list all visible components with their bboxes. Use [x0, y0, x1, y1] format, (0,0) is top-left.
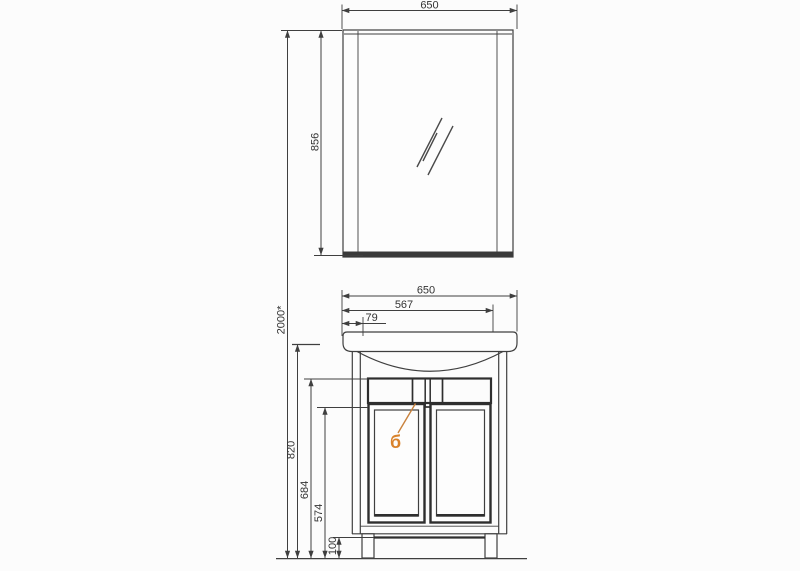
dim-label-apron-top-height: 684 [299, 481, 311, 499]
mirror-frame-bottom-bar [343, 252, 513, 258]
dim-label-567: 567 [395, 299, 413, 311]
washbasin-bowl-curve [357, 352, 503, 372]
dim-label-apron-bottom-height: 574 [313, 504, 325, 522]
dim-label-mirror-height: 856 [310, 133, 322, 151]
washbasin-rim [343, 332, 517, 352]
dim-label-79: 79 [366, 312, 378, 324]
technical-drawing-canvas: 650 2000* 856 820 684 574 100 650 5 [0, 0, 800, 571]
dim-label-basin-width: 650 [417, 284, 435, 296]
cabinet [276, 351, 527, 559]
dim-label-overall-height: 2000* [276, 305, 288, 334]
door-left [369, 404, 425, 523]
washbasin [343, 332, 517, 371]
dim-label-plinth-height: 100 [327, 537, 339, 555]
callout-label: б [390, 432, 401, 452]
mirror [343, 30, 513, 257]
dim-label-cabinet-height: 820 [286, 441, 298, 459]
leg-right [485, 534, 497, 558]
mirror-frame [343, 30, 513, 257]
drawing-page: 650 2000* 856 820 684 574 100 650 5 [0, 0, 800, 571]
dim-label-mirror-width: 650 [420, 0, 438, 12]
door-right [431, 404, 491, 523]
